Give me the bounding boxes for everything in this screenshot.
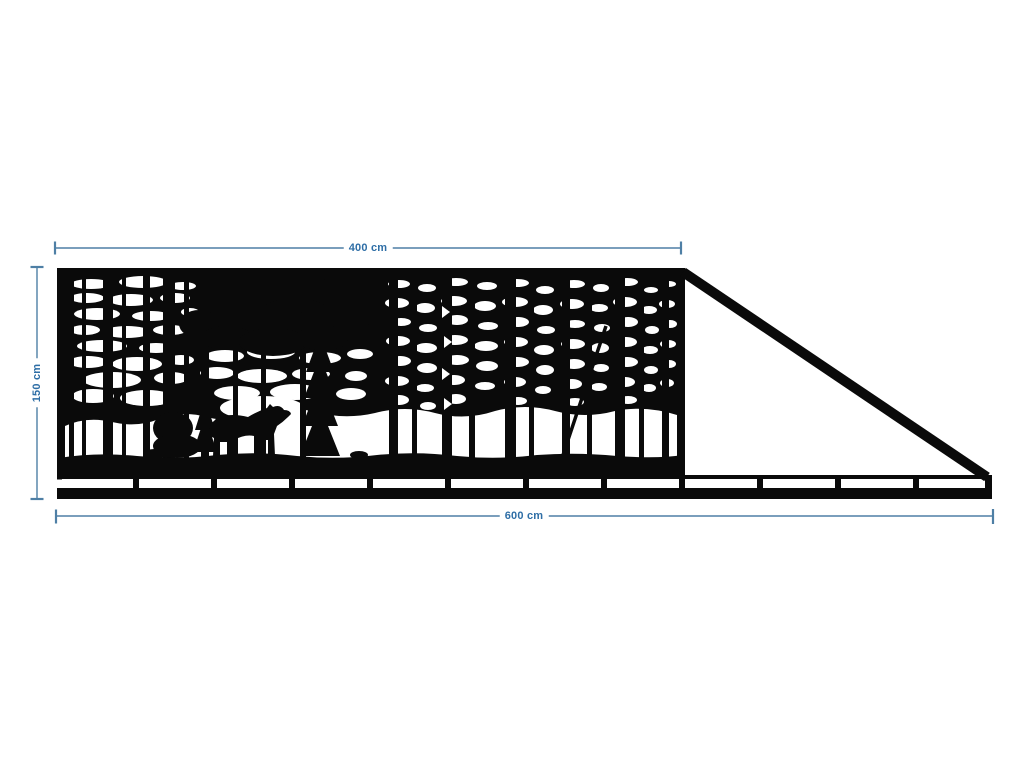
gate-drawing-page: 400 cm 150 cm 600 cm [0,0,1024,768]
bottom-rail [57,475,992,499]
dimension-label-gate-height: 150 cm [31,359,43,408]
diagonal-tail-brace [683,272,987,477]
dimension-label-total-width: 600 cm [500,510,549,522]
gate-technical-drawing [0,0,1024,768]
gate-silhouette [57,270,992,499]
dimension-label-panel-width: 400 cm [344,242,393,254]
